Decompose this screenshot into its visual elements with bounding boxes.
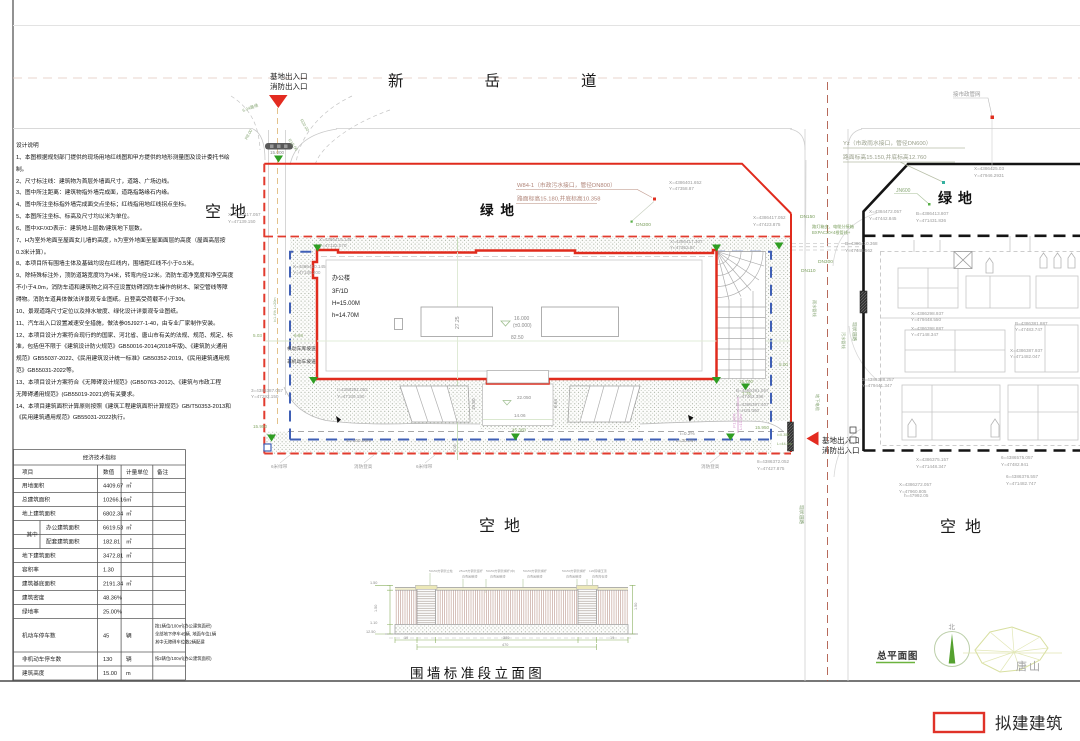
- svg-text:X=4386401.652: X=4386401.652: [669, 180, 702, 185]
- svg-text:Y=47130.200: Y=47130.200: [293, 270, 321, 275]
- svg-text:数值: 数值: [103, 468, 115, 476]
- svg-text:6米绿带: 6米绿带: [271, 463, 288, 470]
- svg-text:3F/1D: 3F/1D: [332, 289, 349, 295]
- svg-text:7.75: 7.75: [742, 391, 751, 396]
- svg-text:㎡: ㎡: [126, 580, 132, 588]
- svg-text:唐山: 唐山: [1016, 659, 1042, 673]
- svg-text:19.80: 19.80: [471, 398, 476, 410]
- svg-text:1.50: 1.50: [370, 581, 377, 585]
- svg-text:25x25方钢管竖杆: 25x25方钢管竖杆: [459, 568, 483, 573]
- svg-text:5.03: 5.03: [253, 333, 262, 338]
- svg-text:3=4386387.057: 3=4386387.057: [251, 388, 284, 393]
- svg-text:i=1.4% L=20m: i=1.4% L=20m: [273, 298, 277, 323]
- svg-text:380: 380: [503, 636, 509, 640]
- svg-text:B=4386413.807: B=4386413.807: [916, 211, 949, 216]
- svg-text:其中: 其中: [27, 531, 39, 539]
- svg-text:DN150: DN150: [800, 214, 815, 220]
- svg-text:B=4386391.057: B=4386391.057: [736, 388, 769, 393]
- svg-text:B=4386397.407: B=4386397.407: [736, 402, 769, 407]
- svg-text:50x50方钢管横杆(中): 50x50方钢管横杆(中): [486, 568, 515, 573]
- svg-text:2191.34: 2191.34: [103, 582, 123, 588]
- svg-text:Y=47423.875: Y=47423.875: [753, 222, 781, 227]
- svg-text:现状道路: 现状道路: [798, 505, 805, 524]
- svg-text:JN600: JN600: [896, 188, 911, 194]
- svg-text:其中无障碍车位数2辆配建: 其中无障碍车位数2辆配建: [155, 639, 205, 646]
- svg-text:X=4386387.937: X=4386387.937: [1010, 348, 1043, 353]
- svg-text:B=4386410.368: B=4386410.368: [845, 241, 878, 246]
- svg-text:路面标高15.180,井底标高10.358: 路面标高15.180,井底标高10.358: [517, 195, 600, 203]
- svg-text:R8.00: R8.00: [244, 128, 254, 141]
- svg-text:50x50方钢管立柱: 50x50方钢管立柱: [429, 568, 453, 573]
- svg-text:㎡: ㎡: [126, 482, 132, 490]
- svg-text:12.50: 12.50: [366, 630, 376, 634]
- svg-text:3472.81: 3472.81: [103, 554, 123, 560]
- svg-text:L=10.0m: L=10.0m: [738, 414, 743, 430]
- svg-text:X=4386417.052: X=4386417.052: [753, 215, 786, 220]
- svg-text:B=4386381.887: B=4386381.887: [1015, 321, 1048, 326]
- svg-text:建筑密度: 建筑密度: [22, 594, 45, 602]
- svg-text:1.30: 1.30: [103, 568, 114, 574]
- svg-text:Y=47358.87: Y=47358.87: [669, 186, 694, 191]
- svg-text:Y=471482.047: Y=471482.047: [1010, 354, 1040, 359]
- svg-text:白色真石漆: 白色真石漆: [592, 574, 607, 579]
- svg-text:㎡: ㎡: [126, 510, 132, 518]
- svg-text:19: 19: [610, 636, 614, 640]
- svg-text:Y=471448.347: Y=471448.347: [916, 464, 946, 469]
- svg-text:15.700: 15.700: [739, 379, 753, 384]
- svg-text:6.04路缘: 6.04路缘: [241, 101, 260, 114]
- svg-text:Y=H20.060: Y=H20.060: [736, 408, 760, 413]
- svg-text:14.06: 14.06: [514, 413, 526, 418]
- svg-text:非机动车坡道: 非机动车坡道: [287, 358, 316, 365]
- svg-text:50x50方钢管横杆: 50x50方钢管横杆: [562, 568, 586, 573]
- svg-text:h=14.70M: h=14.70M: [332, 313, 359, 319]
- svg-text:I=4386391.052: I=4386391.052: [337, 387, 368, 392]
- svg-text:45.360: 45.360: [512, 428, 526, 433]
- svg-text:绿地率: 绿地率: [22, 608, 39, 616]
- svg-text:Y=47130.150: Y=47130.150: [337, 394, 365, 399]
- svg-text:5.05: 5.05: [452, 443, 457, 452]
- svg-text:地下电缆: 地下电缆: [814, 394, 821, 412]
- svg-text:用地面积: 用地面积: [22, 482, 45, 490]
- svg-text:Yz（市政雨水接口，管径DN600）: Yz（市政雨水接口，管径DN600）: [843, 139, 932, 147]
- svg-text:X=4386272.057: X=4386272.057: [899, 482, 932, 487]
- svg-text:DN300: DN300: [818, 259, 833, 265]
- svg-text:50x50方钢管横杆: 50x50方钢管横杆: [523, 568, 547, 573]
- svg-text:按2辆位/100㎡(办公建筑面积): 按2辆位/100㎡(办公建筑面积): [155, 655, 212, 662]
- svg-text:182.81: 182.81: [103, 540, 120, 546]
- svg-text:Y=47362.87: Y=47362.87: [670, 245, 695, 250]
- svg-text:H=15.00M: H=15.00M: [332, 301, 360, 307]
- svg-text:配套建筑面积: 配套建筑面积: [46, 538, 80, 546]
- svg-text:Y=47292.150: Y=47292.150: [251, 394, 279, 399]
- svg-text:路灯箱变、电缆分接箱: 路灯箱变、电缆分接箱: [812, 223, 854, 230]
- svg-text:Y=47482.941: Y=47482.941: [1001, 462, 1029, 467]
- svg-text:办公建筑面积: 办公建筑面积: [46, 524, 80, 532]
- svg-text:消防出入口: 消防出入口: [270, 81, 308, 91]
- svg-text:1.10: 1.10: [370, 621, 377, 625]
- svg-text:辆: 辆: [126, 631, 132, 639]
- svg-text:白色氟碳漆: 白色氟碳漆: [566, 574, 581, 579]
- svg-text:全部地下停车45辆, 地面车位1辆: 全部地下停车45辆, 地面车位1辆: [155, 631, 217, 638]
- svg-text:消防登高: 消防登高: [354, 463, 373, 470]
- svg-text:9.54: 9.54: [553, 399, 558, 408]
- svg-text:27.25: 27.25: [455, 316, 461, 329]
- svg-text:Y=47132.070: Y=47132.070: [319, 243, 347, 248]
- svg-text:Y=471431.836: Y=471431.836: [916, 218, 946, 223]
- svg-text:Y=471482.747: Y=471482.747: [1006, 481, 1036, 486]
- svg-text:82.50: 82.50: [511, 335, 524, 341]
- svg-text:(±0.000): (±0.000): [513, 323, 532, 329]
- svg-text:Y=47148.347: Y=47148.347: [911, 332, 939, 337]
- svg-text:i=0.350: i=0.350: [777, 433, 790, 437]
- svg-text:Y=479448.550: Y=479448.550: [911, 317, 941, 322]
- svg-text:容积率: 容积率: [22, 566, 39, 574]
- svg-text:19: 19: [404, 636, 408, 640]
- svg-text:X=4384472.057: X=4384472.057: [869, 209, 902, 214]
- svg-text:15.950: 15.950: [755, 425, 769, 430]
- svg-text:路面标高15.150,井底标高12.760: 路面标高15.150,井底标高12.760: [843, 153, 926, 161]
- svg-text:8=4386372.052: 8=4386372.052: [757, 459, 790, 464]
- svg-text:总平面图: 总平面图: [877, 650, 918, 662]
- svg-text:R20.00: R20.00: [299, 118, 310, 133]
- svg-text:㎡: ㎡: [126, 496, 132, 504]
- svg-text:DN300: DN300: [636, 222, 651, 228]
- svg-text:围墙标准段立面图: 围墙标准段立面图: [410, 666, 545, 681]
- svg-text:120砖墙压顶: 120砖墙压顶: [589, 568, 607, 573]
- svg-text:3=4386388.257: 3=4386388.257: [862, 377, 895, 382]
- svg-text:Y=479441.347: Y=479441.347: [862, 383, 892, 388]
- svg-text:6=4386376.557: 6=4386376.557: [1006, 474, 1039, 479]
- svg-text:6=4386575.057: 6=4386575.057: [1001, 455, 1034, 460]
- svg-text:非机动车停车数: 非机动车停车数: [22, 655, 62, 663]
- svg-text:Y=47427.875: Y=47427.875: [757, 466, 785, 471]
- svg-text:地上建筑面积: 地上建筑面积: [22, 510, 56, 518]
- svg-text:Y=47946.2931: Y=47946.2931: [974, 173, 1004, 178]
- svg-text:接市政管网: 接市政管网: [953, 90, 981, 98]
- svg-text:现状道路: 现状道路: [851, 322, 858, 341]
- svg-text:X=4386417.307: X=4386417.307: [670, 239, 703, 244]
- svg-text:项目: 项目: [22, 469, 33, 476]
- svg-text:1.50: 1.50: [634, 603, 638, 610]
- svg-text:污水管线: 污水管线: [840, 332, 847, 350]
- svg-text:L=100.00m: L=100.00m: [347, 438, 371, 444]
- svg-text:建筑基底面积: 建筑基底面积: [22, 580, 56, 588]
- svg-text:基地出入口: 基地出入口: [270, 71, 308, 81]
- svg-text:470: 470: [502, 643, 508, 647]
- svg-text:X=4386298.937: X=4386298.937: [911, 311, 944, 316]
- svg-text:X=4386425.03: X=4386425.03: [974, 166, 1004, 171]
- svg-text:16.000: 16.000: [514, 316, 530, 322]
- svg-text:㎡: ㎡: [126, 524, 132, 532]
- svg-text:48.36%: 48.36%: [103, 596, 122, 602]
- svg-text:白色氟碳漆: 白色氟碳漆: [490, 574, 505, 579]
- svg-text:雨水管线: 雨水管线: [811, 300, 818, 318]
- svg-text:北: 北: [949, 623, 956, 631]
- svg-text:6802.34: 6802.34: [103, 512, 123, 518]
- svg-text:X=4386398.887: X=4386398.887: [911, 326, 944, 331]
- svg-text:1.50: 1.50: [374, 605, 378, 612]
- svg-text:6619.53: 6619.53: [103, 526, 123, 532]
- svg-text:15.950: 15.950: [253, 424, 267, 429]
- svg-text:L=30.0m: L=30.0m: [676, 438, 695, 444]
- svg-text:6.93: 6.93: [294, 333, 303, 338]
- svg-text:机动车库坡道: 机动车库坡道: [287, 345, 316, 352]
- svg-text:130: 130: [103, 657, 112, 663]
- svg-text:X=4386410.145: X=4386410.145: [293, 264, 326, 269]
- svg-text:BXPAC30×4根管线+: BXPAC30×4根管线+: [812, 229, 851, 236]
- svg-text:i=1.80%: i=1.80%: [732, 413, 737, 428]
- svg-text:Y=47448.562: Y=47448.562: [845, 248, 873, 253]
- svg-text:45: 45: [103, 633, 109, 639]
- svg-text:6米绿带: 6米绿带: [416, 463, 433, 470]
- svg-text:W84-1（市政污水接口，管径DN800）: W84-1（市政污水接口，管径DN800）: [517, 181, 616, 189]
- svg-text:地下建筑面积: 地下建筑面积: [22, 552, 56, 560]
- svg-text:总建筑面积: 总建筑面积: [22, 496, 50, 504]
- svg-text:22.050: 22.050: [517, 395, 531, 400]
- svg-text:m: m: [126, 671, 131, 677]
- svg-text:拟建建筑: 拟建建筑: [995, 714, 1063, 733]
- svg-text:白色氟碳漆: 白色氟碳漆: [527, 574, 542, 579]
- svg-text:L=44.2m: L=44.2m: [777, 442, 792, 446]
- svg-text:Y=47483.747: Y=47483.747: [1015, 327, 1043, 332]
- svg-text:办公楼: 办公楼: [332, 274, 350, 282]
- svg-text:X=4386415.145: X=4386415.145: [319, 237, 352, 242]
- svg-text:5.00: 5.00: [779, 362, 788, 367]
- svg-text:DN110: DN110: [801, 268, 816, 274]
- svg-text:h=47992.05: h=47992.05: [904, 493, 929, 498]
- svg-text:建筑高度: 建筑高度: [22, 669, 45, 677]
- svg-text:按1辆位/100㎡(办公建筑面积): 按1辆位/100㎡(办公建筑面积): [155, 623, 212, 630]
- svg-text:25.00%: 25.00%: [103, 610, 122, 616]
- svg-text:备注: 备注: [157, 468, 169, 476]
- svg-text:消防登高: 消防登高: [701, 463, 720, 470]
- svg-text:白色氟碳漆: 白色氟碳漆: [462, 574, 477, 579]
- svg-text:Y=47442.845: Y=47442.845: [869, 216, 897, 221]
- svg-text:辆: 辆: [126, 655, 132, 663]
- svg-text:㎡: ㎡: [126, 552, 132, 560]
- svg-text:15.00: 15.00: [103, 671, 117, 677]
- svg-text:15.000: 15.000: [270, 150, 284, 155]
- svg-text:10266.16: 10266.16: [103, 498, 126, 504]
- svg-text:经济技术指标: 经济技术指标: [83, 453, 117, 461]
- svg-text:X=4386375.157: X=4386375.157: [916, 457, 949, 462]
- svg-text:㎡: ㎡: [126, 538, 132, 546]
- svg-text:i=0.2%: i=0.2%: [680, 431, 696, 437]
- svg-text:计量单位: 计量单位: [126, 468, 149, 476]
- svg-text:机动车停车数: 机动车停车数: [22, 631, 56, 639]
- svg-text:4409.67: 4409.67: [103, 484, 123, 490]
